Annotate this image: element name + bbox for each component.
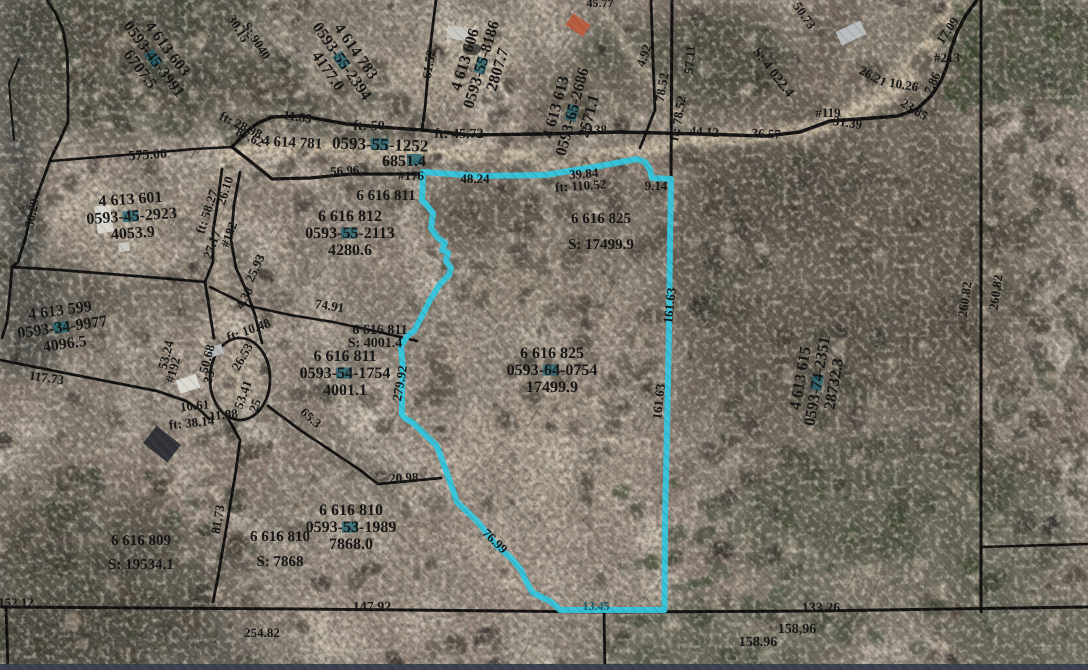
svg-text:6 616 825: 6 616 825 bbox=[571, 211, 631, 227]
svg-text:S: 7868: S: 7868 bbox=[256, 554, 303, 570]
svg-text:13.45: 13.45 bbox=[583, 599, 610, 613]
svg-text:48.24: 48.24 bbox=[460, 171, 490, 186]
svg-text:254.82: 254.82 bbox=[244, 625, 280, 640]
svg-text:0593-55-2113: 0593-55-2113 bbox=[305, 225, 395, 242]
svg-text:6 616 810: 6 616 810 bbox=[319, 502, 383, 519]
svg-text:20.98: 20.98 bbox=[389, 469, 419, 486]
svg-text:0593-64-0754: 0593-64-0754 bbox=[507, 362, 598, 379]
svg-text:S: 17499.9: S: 17499.9 bbox=[568, 237, 634, 253]
svg-text:#138: #138 bbox=[581, 122, 608, 137]
svg-text:6 616 810: 6 616 810 bbox=[250, 529, 310, 545]
svg-text:36.57: 36.57 bbox=[751, 125, 781, 142]
svg-text:#213: #213 bbox=[934, 50, 961, 65]
svg-text:6 616 812: 6 616 812 bbox=[318, 208, 382, 225]
svg-text:147.92: 147.92 bbox=[353, 600, 392, 615]
svg-text:152.12: 152.12 bbox=[0, 595, 34, 610]
svg-text:56.96: 56.96 bbox=[330, 162, 360, 179]
svg-text:0593-54-1754: 0593-54-1754 bbox=[300, 365, 391, 382]
svg-text:4280.6: 4280.6 bbox=[328, 242, 372, 259]
svg-text:158.96: 158.96 bbox=[739, 635, 778, 650]
svg-text:4053.9: 4053.9 bbox=[110, 223, 155, 243]
svg-text:S: 19534.1: S: 19534.1 bbox=[108, 557, 174, 573]
svg-text:6 616 811: 6 616 811 bbox=[356, 188, 415, 204]
svg-text:4001.1: 4001.1 bbox=[323, 382, 367, 399]
svg-text:4 614 781: 4 614 781 bbox=[262, 133, 323, 152]
svg-text:6 616 809: 6 616 809 bbox=[111, 533, 171, 549]
svg-text:575.00: 575.00 bbox=[128, 147, 167, 165]
svg-text:158,96: 158,96 bbox=[778, 622, 817, 637]
svg-text:6 616 825: 6 616 825 bbox=[520, 345, 584, 362]
svg-text:#176: #176 bbox=[398, 168, 425, 183]
svg-text:44.12: 44.12 bbox=[689, 123, 719, 140]
svg-text:0593-53-1989: 0593-53-1989 bbox=[306, 519, 397, 536]
svg-text:ft: 45.72: ft: 45.72 bbox=[435, 127, 484, 142]
svg-text:45.77: 45.77 bbox=[587, 0, 614, 10]
svg-text:ft: 50: ft: 50 bbox=[353, 119, 385, 134]
svg-text:17499.9: 17499.9 bbox=[526, 379, 578, 396]
svg-text:10.61: 10.61 bbox=[179, 397, 210, 415]
svg-text:7868.0: 7868.0 bbox=[329, 536, 373, 553]
svg-text:133.26: 133.26 bbox=[802, 601, 841, 616]
svg-text:S: 4001.4: S: 4001.4 bbox=[348, 336, 402, 351]
svg-text:57.11: 57.11 bbox=[681, 45, 698, 75]
svg-text:9.14: 9.14 bbox=[645, 178, 668, 193]
